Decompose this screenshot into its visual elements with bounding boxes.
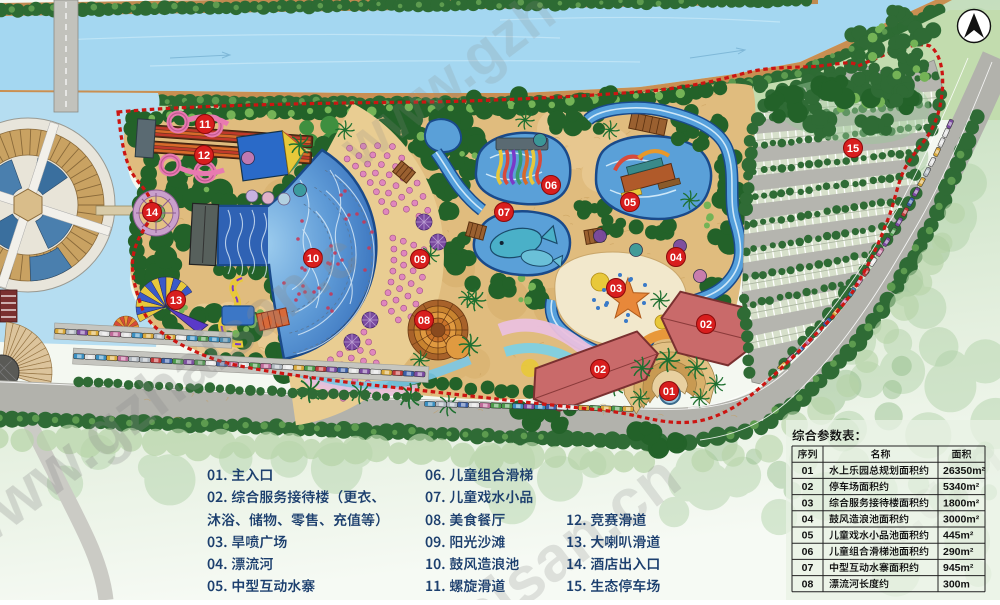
svg-text:03: 03 (610, 283, 622, 295)
svg-text:01: 01 (663, 386, 675, 398)
svg-text:03: 03 (802, 497, 814, 509)
svg-text:09: 09 (414, 254, 426, 266)
svg-text:05: 05 (802, 530, 814, 542)
svg-text:3000m²: 3000m² (943, 514, 980, 526)
svg-text:945m²: 945m² (943, 562, 974, 574)
svg-text:1800m²: 1800m² (943, 497, 980, 509)
svg-text:06: 06 (545, 180, 557, 192)
svg-text:5340m²: 5340m² (943, 481, 980, 493)
svg-text:08: 08 (418, 315, 430, 327)
svg-text:26350m²: 26350m² (943, 465, 986, 477)
svg-text:02: 02 (594, 364, 606, 376)
svg-text:02: 02 (700, 319, 712, 331)
svg-text:08: 08 (802, 578, 814, 590)
svg-text:11: 11 (199, 119, 211, 131)
svg-text:06: 06 (802, 546, 814, 558)
svg-text:05: 05 (624, 197, 636, 209)
svg-text:07: 07 (498, 207, 510, 219)
svg-text:13: 13 (170, 295, 182, 307)
svg-text:12: 12 (198, 150, 210, 162)
svg-text:290m²: 290m² (943, 546, 974, 558)
svg-text:300m: 300m (943, 578, 970, 590)
svg-text:02: 02 (802, 481, 814, 493)
svg-text:15: 15 (847, 143, 859, 155)
svg-text:04: 04 (802, 514, 814, 526)
svg-text:14: 14 (146, 207, 159, 219)
svg-text:07: 07 (802, 562, 814, 574)
svg-text:04: 04 (670, 252, 683, 264)
svg-text:01: 01 (802, 465, 814, 477)
svg-text:445m²: 445m² (943, 530, 974, 542)
